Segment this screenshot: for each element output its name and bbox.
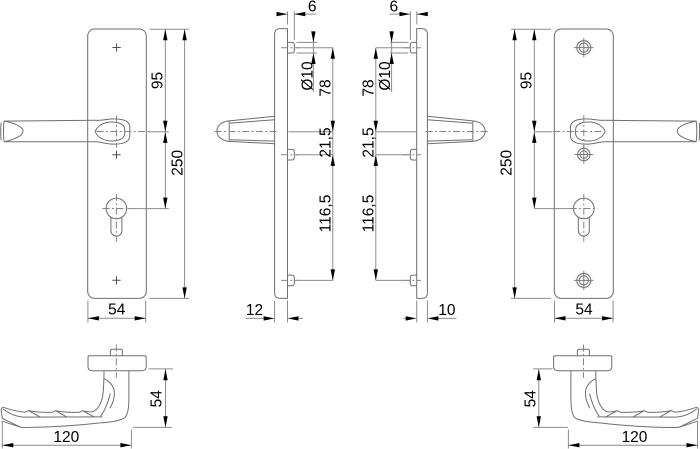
svg-text:21,5: 21,5 [360, 127, 377, 157]
svg-text:116,5: 116,5 [317, 195, 334, 233]
svg-text:95: 95 [150, 72, 167, 89]
svg-text:78: 78 [317, 79, 334, 96]
svg-text:120: 120 [622, 429, 648, 446]
svg-text:54: 54 [149, 390, 166, 408]
svg-text:78: 78 [360, 79, 377, 96]
svg-text:21,5: 21,5 [317, 127, 334, 157]
svg-text:12: 12 [246, 302, 263, 319]
svg-text:6: 6 [389, 0, 398, 16]
svg-text:250: 250 [169, 149, 186, 175]
svg-text:54: 54 [522, 390, 539, 408]
svg-text:54: 54 [108, 302, 126, 319]
svg-text:6: 6 [308, 0, 317, 16]
svg-text:250: 250 [498, 149, 515, 175]
svg-text:95: 95 [519, 72, 536, 89]
svg-text:120: 120 [53, 429, 79, 446]
svg-text:Ø10: Ø10 [299, 61, 316, 91]
svg-text:54: 54 [575, 302, 593, 319]
svg-text:10: 10 [438, 302, 456, 319]
svg-text:116,5: 116,5 [360, 195, 377, 233]
svg-text:Ø10: Ø10 [377, 61, 394, 91]
